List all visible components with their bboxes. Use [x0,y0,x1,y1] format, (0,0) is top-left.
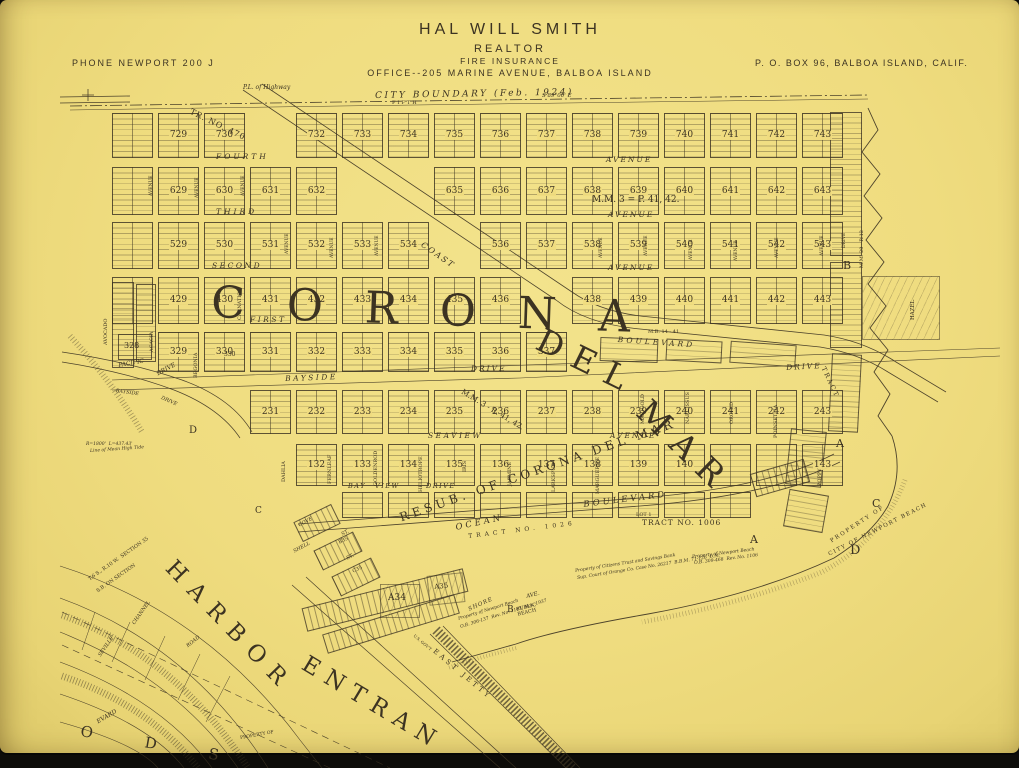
block-334: 334 [388,332,429,372]
block-739: 739 [618,113,659,158]
block-639: 639 [618,167,659,215]
block [664,492,705,518]
block-234: 234 [388,390,429,434]
parcel [783,489,829,533]
marigold-street-label: MARIGOLD [641,394,646,424]
block [756,444,797,486]
acacia-street-label: ACACIA [150,332,155,352]
bearing-label: S 89°00' E [542,94,572,100]
avenue-vertical-label: AVENUE [376,235,381,256]
block-632: 632 [296,167,337,215]
block-429: 429 [158,277,199,324]
mm3-p-label: M.M. 3 = P. 41, 42. [592,196,679,205]
block [112,167,153,215]
marguerite-street-label: MARGUERITE [596,457,601,494]
realtor-name: HAL WILL SMITH [380,21,640,39]
block-732: 732 [296,113,337,158]
poppy-street-label: POPPY [818,469,823,487]
marker-d: D [189,426,197,437]
highway-note: P.L. of Highway [243,85,290,91]
block-328-label: 328 [124,342,139,350]
map: 7297307327337347357367377387397407417427… [0,0,1019,768]
avenue-vertical-label: AVENUE [690,239,695,260]
drive-vertical-label: DRIVE [843,233,848,248]
po-box: P. O. BOX 96, BALBOA ISLAND, CALIF. [755,58,968,68]
block-a34-label: A34 [388,594,406,603]
block-638: 638 [572,167,613,215]
dahlia-street-label: DAHLIA [282,461,287,482]
block [526,492,567,518]
block-537: 537 [526,222,567,269]
block-641: 641 [710,167,751,215]
avenue-vertical-label: AVENUE [150,175,155,196]
marker-d: D [850,544,860,558]
block-735: 735 [434,113,475,158]
block-643: 643 [802,167,843,215]
realtor-subtitle: REALTOR [380,43,640,55]
block-636: 636 [480,167,521,215]
avenue-vertical-label: AVENUE [242,175,247,196]
block-232: 232 [296,390,337,434]
block-734: 734 [388,113,429,158]
block-541: 541 [710,222,751,269]
block-238: 238 [572,390,613,434]
block-629: 629 [158,167,199,215]
heliotrope-street-label: HELIOTROPE [419,456,424,492]
hazel-street-label: HAZEL [911,300,917,320]
marker-c: C [872,498,880,510]
second-avenue-label: SECOND [212,262,262,270]
avenue-vertical-label: AVENUE [286,233,291,254]
office-address: OFFICE--205 MARINE AVENUE, BALBOA ISLAND [310,68,710,78]
block-642: 642 [756,167,797,215]
block-441: 441 [710,277,751,324]
phone-number: PHONE NEWPORT 200 J [72,58,215,68]
marker-a: A [750,534,758,546]
avenue-vertical-label: AVENUE [645,235,650,256]
marker-b: B [507,606,514,615]
block [112,277,153,324]
iris-street-label: IRIS [463,461,468,472]
block-740: 740 [664,113,705,158]
block-539: 539 [618,222,659,269]
block-row-200s: 231232233234235236237238239240241242243 [250,390,843,434]
block-529: 529 [158,222,199,269]
block-333: 333 [342,332,383,372]
block-538: 538 [572,222,613,269]
begonia-street-label: BEGONIA [194,353,199,378]
block-536: 536 [480,222,521,269]
avocado-street-label: AVOCADO [104,318,109,345]
block-442: 442 [756,277,797,324]
rail-lines [60,89,130,103]
block-540: 540 [664,222,705,269]
block-331: 331 [250,332,291,372]
poinsettia-street-label: POINSETTIA [774,405,779,438]
drive-label: DRIVE [471,365,507,373]
mm20-wedge [862,276,940,340]
marker-a: A [836,438,844,450]
buck-gully-zigzag [862,108,892,436]
block [112,222,153,269]
block-637: 637 [526,167,567,215]
block-231: 231 [250,390,291,434]
block-330-label: 330 [224,352,235,358]
bay-label: BAY [348,483,366,490]
block-737: 737 [526,113,567,158]
bayview-drive-label: DRIVE [426,483,456,490]
avenue-vertical-label: AVENUE [196,177,201,198]
avenue-vertical-label: AVENUE [776,237,781,258]
block-635: 635 [434,167,475,215]
tract-1006-label: TRACT NO. 1006 [642,519,721,527]
east-jetty-hatch [436,630,572,768]
block-443: 443 [802,277,843,324]
fernleaf-street-label: FERNLEAF [328,455,333,484]
block-729: 729 [158,113,199,158]
orchid-street-label: ORCHID [730,402,735,424]
block-237: 237 [526,390,567,434]
block-741: 741 [710,113,751,158]
third-avenue-label: THIRD [216,208,257,216]
seaview-label: SEAVIEW [428,432,483,440]
avenue-vertical-label: AVENUE [821,235,826,256]
block-139: 139 [618,444,659,486]
mm20-r12-label: M.M. 20 - R.12 [860,230,865,268]
carnation-street-label: CARNATION [238,287,243,320]
marker-b: B [843,260,851,272]
block-135: 135 [434,444,475,486]
bayside-label: BAYSIDE [285,373,338,383]
fifth-avenue-label: FIFTH [392,101,419,106]
block-742: 742 [756,113,797,158]
goldenrod-street-label: GOLDENROD [374,451,379,486]
avenue-vertical-label: AVENUE [331,237,336,258]
block [342,492,383,518]
block-233: 233 [342,390,383,434]
avenue-label: AVENUE [608,264,654,272]
block-738: 738 [572,113,613,158]
block-736: 736 [480,113,521,158]
block-335: 335 [434,332,475,372]
avenue-vertical-label: AVENUE [600,237,605,258]
marker-c: C [255,507,262,516]
narcissus-street-label: NARCISSUS [686,392,691,424]
block-733: 733 [342,113,383,158]
fire-insurance-label: FIRE INSURANCE [380,56,640,66]
larkspur-street-label: LARKSPUR [552,463,557,492]
jasmine-street-label: JASMINE [508,462,513,486]
avenue-label: AVENUE [608,211,654,219]
block-743: 743 [802,113,843,158]
drive-label: DRIVE [786,362,822,372]
block-a35-label: A35 [434,583,449,592]
block [112,113,153,158]
avenue-vertical-label: AVENUE [735,240,740,261]
fourth-avenue-label: FOURTH [216,153,269,161]
block-640: 640 [664,167,705,215]
avenue-label: AVENUE [606,156,652,164]
block-332: 332 [296,332,337,372]
